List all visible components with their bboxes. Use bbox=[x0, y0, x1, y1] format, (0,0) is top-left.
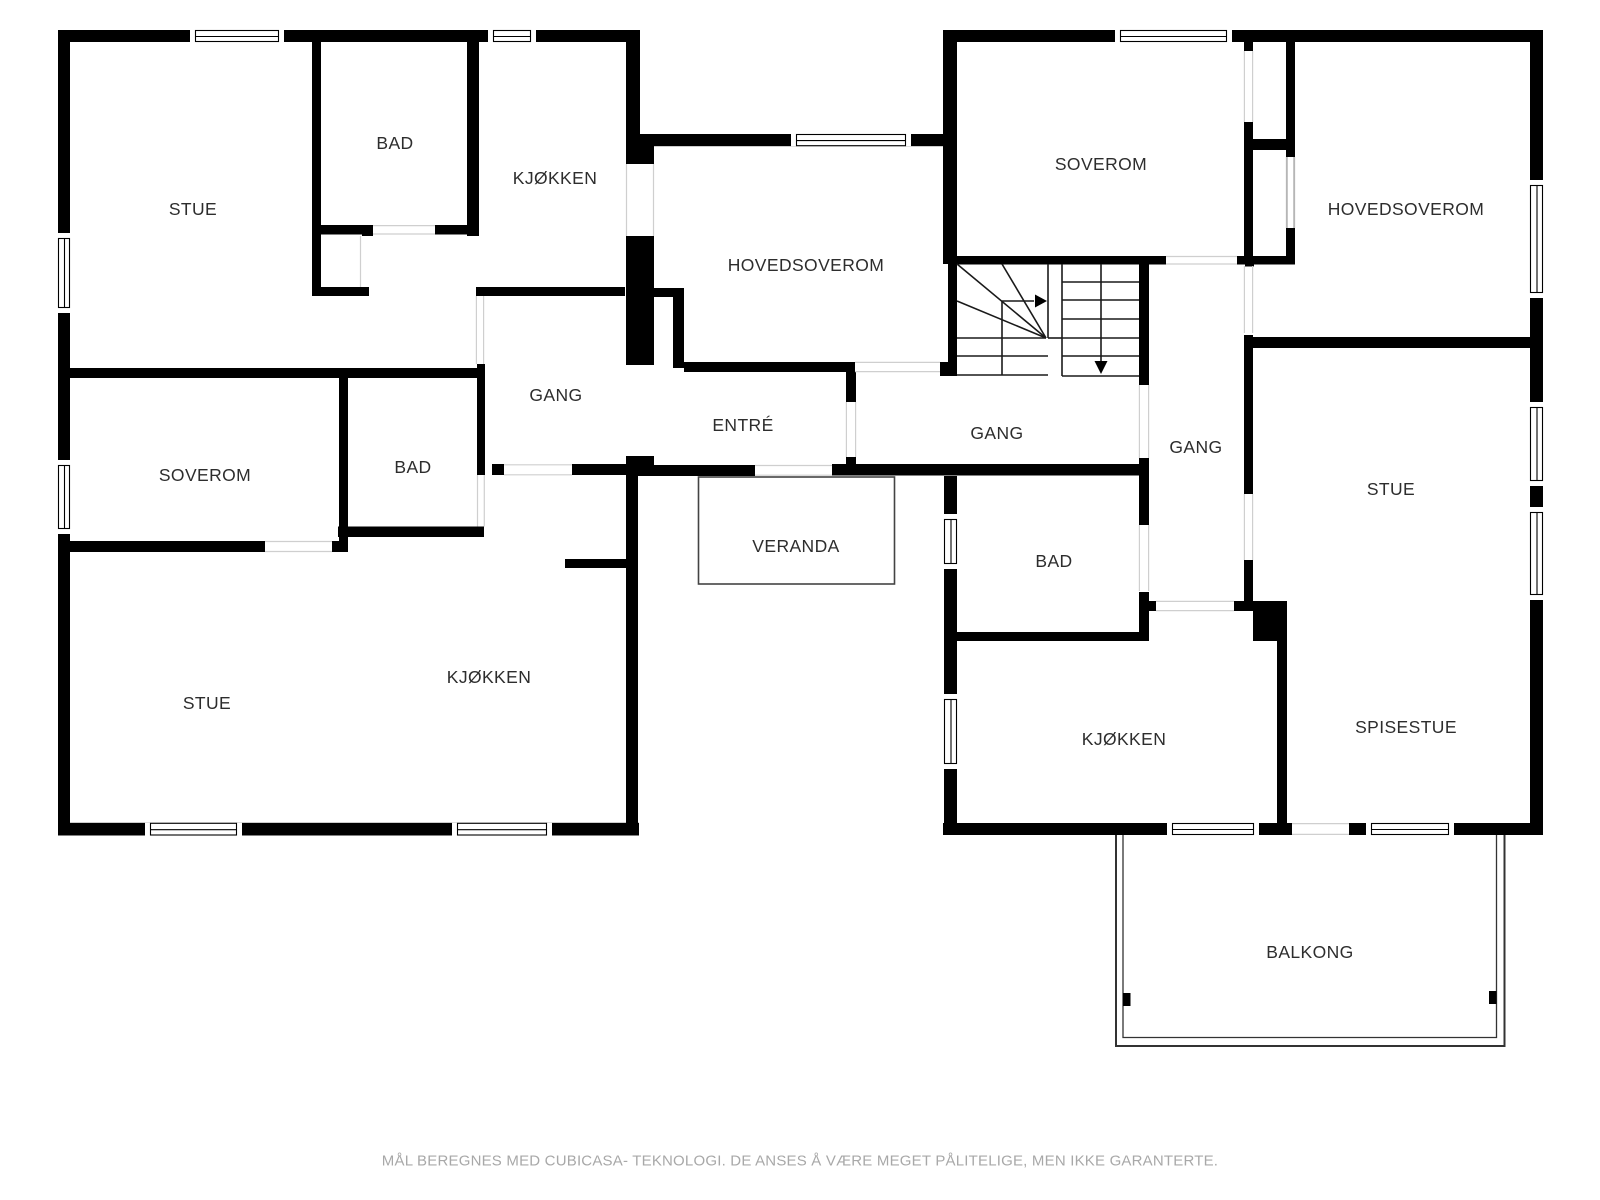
svg-text:GANG: GANG bbox=[529, 385, 582, 405]
svg-text:BAD: BAD bbox=[376, 133, 413, 153]
svg-text:BALKONG: BALKONG bbox=[1266, 942, 1353, 962]
svg-text:BAD: BAD bbox=[1035, 551, 1072, 571]
svg-text:KJØKKEN: KJØKKEN bbox=[447, 667, 532, 687]
svg-text:ENTRÉ: ENTRÉ bbox=[712, 415, 773, 435]
svg-text:KJØKKEN: KJØKKEN bbox=[513, 168, 598, 188]
svg-text:SOVEROM: SOVEROM bbox=[159, 465, 251, 485]
svg-text:STUE: STUE bbox=[183, 693, 231, 713]
svg-text:HOVEDSOVEROM: HOVEDSOVEROM bbox=[1328, 199, 1485, 219]
svg-text:VERANDA: VERANDA bbox=[752, 536, 839, 556]
svg-text:STUE: STUE bbox=[169, 199, 217, 219]
svg-text:SOVEROM: SOVEROM bbox=[1055, 154, 1147, 174]
svg-text:GANG: GANG bbox=[970, 423, 1023, 443]
svg-text:MÅL BEREGNES MED CUBICASA- TEK: MÅL BEREGNES MED CUBICASA- TEKNOLOGI. DE… bbox=[382, 1153, 1218, 1170]
svg-text:BAD: BAD bbox=[394, 457, 431, 477]
svg-text:HOVEDSOVEROM: HOVEDSOVEROM bbox=[728, 255, 885, 275]
svg-text:KJØKKEN: KJØKKEN bbox=[1082, 729, 1167, 749]
svg-text:GANG: GANG bbox=[1169, 437, 1222, 457]
svg-text:STUE: STUE bbox=[1367, 479, 1415, 499]
svg-text:SPISESTUE: SPISESTUE bbox=[1355, 717, 1457, 737]
